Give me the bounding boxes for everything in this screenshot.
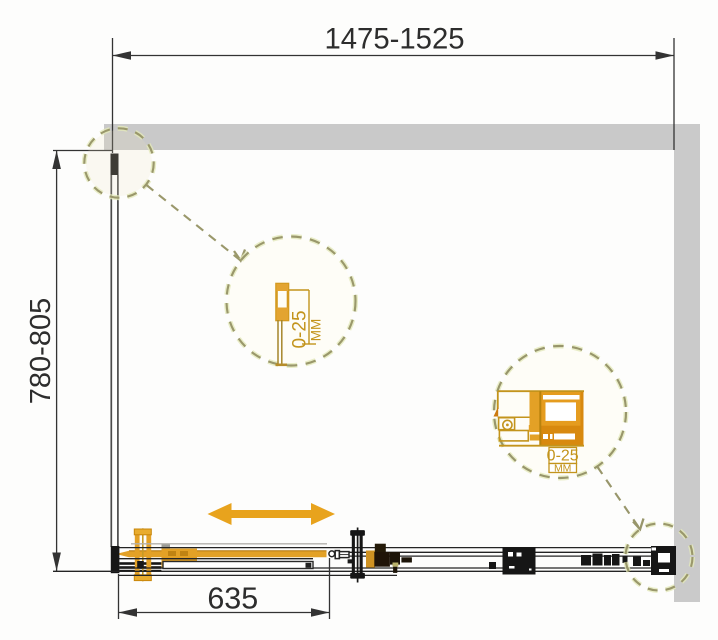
svg-text:MM: MM — [554, 463, 572, 475]
svg-text:1475-1525: 1475-1525 — [324, 23, 464, 56]
svg-text:635: 635 — [207, 582, 258, 616]
svg-text:780-805: 780-805 — [25, 298, 57, 404]
svg-text:0-25: 0-25 — [290, 310, 311, 348]
svg-text:MM: MM — [309, 319, 324, 342]
